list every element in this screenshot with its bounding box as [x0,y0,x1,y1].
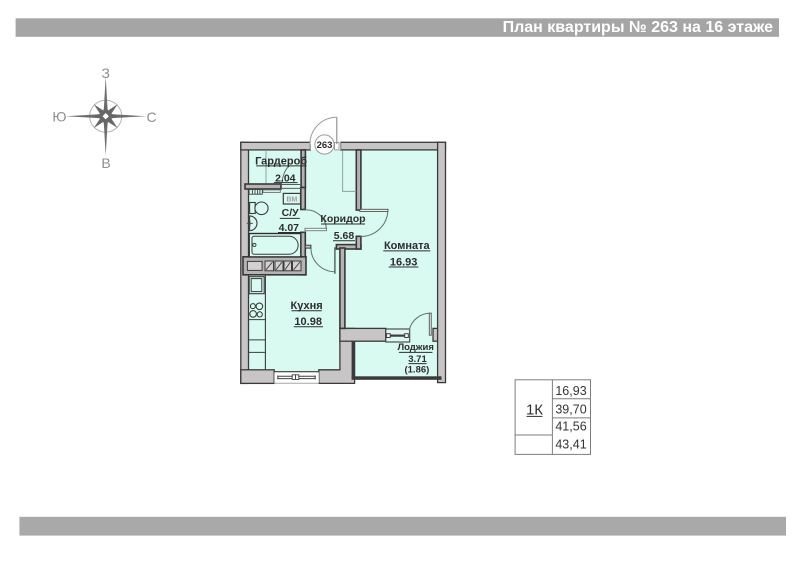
svg-text:263: 263 [317,140,333,151]
svg-text:43,41: 43,41 [555,438,586,452]
svg-text:Коридор: Коридор [320,213,365,225]
svg-text:З: З [101,65,109,81]
svg-text:(1.86): (1.86) [404,365,429,376]
svg-text:41,56: 41,56 [555,420,586,434]
svg-text:5.68: 5.68 [334,230,355,242]
svg-text:План квартиры № 263 на 16 этаж: План квартиры № 263 на 16 этаже [503,19,773,36]
svg-text:16,93: 16,93 [555,384,586,398]
svg-text:С: С [146,109,156,125]
svg-text:Ю: Ю [52,109,66,125]
svg-text:39,70: 39,70 [555,403,586,417]
svg-text:ВМ: ВМ [286,197,297,204]
svg-text:Кухня: Кухня [291,300,323,312]
svg-text:С/У: С/У [282,207,300,219]
svg-text:В: В [101,155,110,171]
svg-text:Лоджия: Лоджия [397,342,434,353]
